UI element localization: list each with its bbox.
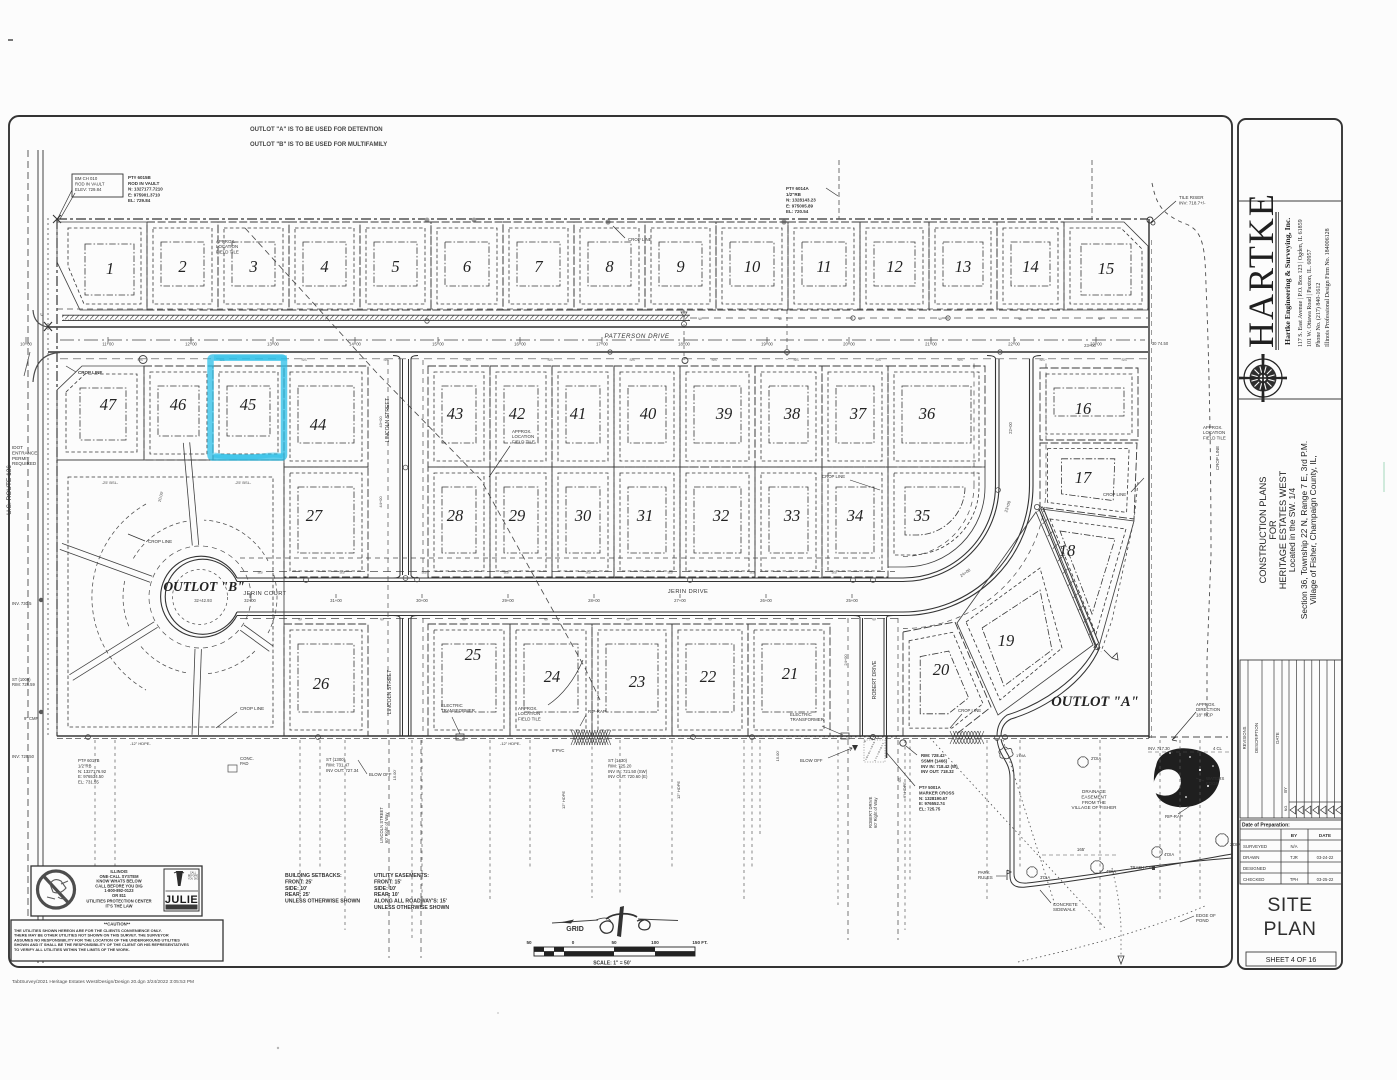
svg-text:SCALE: 1" = 50': SCALE: 1" = 50' — [593, 961, 631, 967]
svg-text:28+00: 28+00 — [588, 598, 600, 603]
svg-text:1: 1 — [106, 259, 114, 278]
svg-text:EL: 725.75: EL: 725.75 — [919, 807, 941, 812]
svg-text:SS: SS — [585, 570, 591, 575]
svg-text:SS: SS — [547, 357, 553, 362]
svg-text:FIELD TILE: FIELD TILE — [216, 249, 239, 254]
svg-text:150 FT.: 150 FT. — [692, 940, 707, 945]
svg-text:FRONT: 25': FRONT: 25' — [285, 879, 312, 885]
svg-text:27+00: 27+00 — [674, 598, 686, 603]
svg-text:PLAN: PLAN — [1264, 918, 1317, 940]
svg-text:CROP LINE: CROP LINE — [240, 706, 264, 711]
svg-text:N: 1327176.92: N: 1327176.92 — [78, 769, 107, 774]
svg-text:SS: SS — [503, 570, 509, 575]
svg-text:E: 975901.3710: E: 975901.3710 — [128, 192, 161, 197]
svg-text:SIDE: 10': SIDE: 10' — [285, 886, 307, 892]
svg-text:29+00: 29+00 — [502, 598, 514, 603]
svg-text:SS: SS — [257, 570, 263, 575]
svg-text:5: 5 — [391, 257, 399, 276]
svg-text:N: 1327177.7210: N: 1327177.7210 — [128, 187, 163, 192]
svg-text:12: 12 — [886, 257, 903, 276]
svg-text:12" HDPE: 12" HDPE — [561, 791, 566, 809]
svg-text:W: W — [298, 617, 302, 622]
svg-text:NO.: NO. — [1284, 805, 1288, 811]
svg-text:N: 1328143.23: N: 1328143.23 — [786, 198, 816, 203]
svg-text:W: W — [626, 617, 630, 622]
svg-text:INV OUT: 718.32: INV OUT: 718.32 — [921, 769, 954, 774]
svg-text:FOR: FOR — [1268, 520, 1278, 540]
svg-text:VILLAGE OF FISHER: VILLAGE OF FISHER — [1072, 805, 1118, 810]
svg-text:BM CH 010: BM CH 010 — [75, 176, 98, 181]
svg-text:Phone No. (217) 840-1612: Phone No. (217) 840-1612 — [1315, 283, 1322, 347]
svg-text:PERMIT: PERMIT — [12, 456, 30, 461]
svg-text:TO VERIFY ALL UTILITIES WITHIN: TO VERIFY ALL UTILITIES WITHIN THE LIMIT… — [14, 947, 130, 952]
svg-text:10: 10 — [744, 257, 761, 276]
svg-text:SSMH (1466): SSMH (1466) — [921, 758, 948, 763]
svg-text:6"PVC: 6"PVC — [552, 748, 564, 753]
svg-text:REAR: 25': REAR: 25' — [285, 892, 310, 898]
svg-text:ST (1430): ST (1430) — [608, 758, 628, 763]
svg-text:15.00': 15.00' — [775, 750, 780, 761]
svg-text:44: 44 — [310, 415, 327, 434]
svg-text:CROP LINE: CROP LINE — [958, 708, 981, 713]
svg-text:ROD IN VAULT: ROD IN VAULT — [75, 182, 105, 187]
svg-text:24: 24 — [544, 667, 561, 686]
svg-text:U: U — [40, 312, 43, 317]
svg-text:Located in the SW. 1/4: Located in the SW. 1/4 — [1287, 488, 1297, 573]
svg-text:REAR: 10': REAR: 10' — [374, 892, 399, 898]
svg-text:PT# 6017B: PT# 6017B — [78, 758, 100, 763]
svg-text:IDOT: IDOT — [12, 445, 23, 450]
svg-text:38: 38 — [783, 404, 801, 423]
svg-text:28: 28 — [447, 506, 464, 525]
svg-text:TPH: TPH — [1290, 877, 1298, 882]
svg-text:TabtSurvey/2021 Heritage Estat: TabtSurvey/2021 Heritage Estates West/De… — [12, 979, 194, 985]
svg-text:TJR: TJR — [1290, 855, 1298, 860]
svg-text:MARKER CROSS: MARKER CROSS — [919, 790, 954, 795]
svg-text:9: 9 — [676, 257, 684, 276]
svg-text:26: 26 — [313, 674, 330, 693]
svg-text:INV. 717.30: INV. 717.30 — [1148, 746, 1170, 751]
svg-text:YOU DIG: YOU DIG — [188, 877, 199, 880]
svg-text:1/2"RB: 1/2"RB — [786, 192, 802, 197]
svg-text:1/2"RB: 1/2"RB — [78, 763, 92, 768]
svg-text:23: 23 — [629, 672, 646, 691]
svg-text:SHEET 4 OF 16: SHEET 4 OF 16 — [1266, 957, 1317, 964]
svg-text:CROP LINE: CROP LINE — [628, 237, 652, 242]
svg-text:DRAWN: DRAWN — [1243, 855, 1259, 860]
svg-text:15.00': 15.00' — [392, 769, 397, 780]
svg-text:SS: SS — [301, 357, 307, 362]
svg-text:3: 3 — [248, 257, 257, 276]
svg-text:W: W — [462, 617, 466, 622]
svg-text:ROBERT DRIVE: ROBERT DRIVE — [872, 660, 878, 699]
svg-text:17: 17 — [1075, 468, 1092, 487]
svg-text:FROM THE: FROM THE — [1082, 800, 1106, 805]
svg-text:FIELD TILE: FIELD TILE — [1203, 435, 1226, 440]
svg-text:117 S. East Avenue | P.O. Box: 117 S. East Avenue | P.O. Box 123 | Ogde… — [1298, 219, 1304, 347]
svg-text:CHECKED: CHECKED — [1243, 877, 1264, 882]
svg-text:UNLESS OTHERWISE SHOWN: UNLESS OTHERWISE SHOWN — [285, 899, 360, 905]
svg-text:22+00: 22+00 — [1008, 421, 1013, 433]
svg-text:INV IN: 721.50 (SW): INV IN: 721.50 (SW) — [608, 769, 648, 774]
svg-text:31: 31 — [636, 506, 654, 525]
svg-text:FRONT: 15': FRONT: 15' — [374, 879, 401, 885]
svg-text:50: 50 — [526, 940, 532, 945]
svg-text:32+00: 32+00 — [244, 598, 256, 603]
svg-text:INV OUT: 727.34: INV OUT: 727.34 — [326, 768, 359, 773]
svg-text:SS: SS — [137, 357, 143, 362]
svg-text:SS: SS — [793, 357, 799, 362]
svg-text:27: 27 — [306, 506, 323, 525]
svg-text:60' Right of Way: 60' Right of Way — [873, 797, 878, 828]
svg-text:CONSTRUCTION PLANS: CONSTRUCTION PLANS — [1258, 477, 1268, 584]
svg-text:EL: 729.84: EL: 729.84 — [128, 198, 151, 203]
svg-text:INV: 718.7+/-: INV: 718.7+/- — [1179, 201, 1206, 206]
svg-text:W: W — [858, 317, 862, 321]
svg-text:SS: SS — [1121, 357, 1127, 362]
svg-text:TRANSFORMER: TRANSFORMER — [790, 717, 824, 722]
svg-text:CROP LINE: CROP LINE — [148, 539, 172, 544]
svg-text:Date of Preparation:: Date of Preparation: — [1242, 823, 1290, 829]
svg-text:29: 29 — [509, 506, 526, 525]
svg-text:SS: SS — [465, 357, 471, 362]
svg-text:101 W. Ottawa Road | Paxton, I: 101 W. Ottawa Road | Paxton, IL. 60957 — [1307, 249, 1313, 347]
svg-text:35: 35 — [913, 506, 931, 525]
svg-text:HARTKE: HARTKE — [1241, 192, 1281, 348]
svg-text:N/A: N/A — [1291, 844, 1298, 849]
svg-text:31+00: 31+00 — [330, 598, 342, 603]
svg-text:W: W — [1098, 317, 1102, 321]
svg-text:-25' BSL-: -25' BSL- — [102, 480, 119, 485]
svg-text:6" HDPE: 6" HDPE — [902, 782, 907, 798]
svg-text:IT'S THE LAW: IT'S THE LAW — [106, 903, 133, 908]
svg-text:3'DIA: 3'DIA — [1040, 875, 1050, 880]
svg-text:EL: 720.54: EL: 720.54 — [786, 209, 809, 214]
svg-text:E: 976552.74: E: 976552.74 — [919, 801, 945, 806]
svg-text:ROD IN VAULT: ROD IN VAULT — [128, 181, 160, 186]
svg-text:PT# 6015B: PT# 6015B — [128, 175, 152, 180]
svg-text:16: 16 — [1075, 399, 1092, 418]
svg-text:Illinois Professional Design F: Illinois Professional Design Firm No. 18… — [1324, 228, 1331, 347]
svg-text:11: 11 — [816, 257, 831, 276]
svg-text:32+42.93: 32+42.93 — [194, 598, 212, 603]
svg-text:OUTLOT "B" IS TO BE USED FOR M: OUTLOT "B" IS TO BE USED FOR MULTIFAMILY — [250, 142, 387, 148]
svg-text:CROP LINE: CROP LINE — [1215, 446, 1220, 470]
svg-text:Village of Fisher, Champaign C: Village of Fisher, Champaign County, IL, — [1308, 455, 1318, 604]
svg-text:W: W — [380, 617, 384, 622]
svg-text:SS: SS — [875, 357, 881, 362]
svg-text:EASEMENT: EASEMENT — [1081, 794, 1106, 799]
svg-text:W: W — [778, 317, 782, 321]
svg-text:GRID: GRID — [566, 926, 584, 933]
svg-text:PT# 6014A: PT# 6014A — [786, 186, 810, 191]
svg-text:21: 21 — [782, 664, 799, 683]
svg-text:-12" HDPE-: -12" HDPE- — [500, 741, 521, 746]
svg-text:SS: SS — [711, 357, 717, 362]
svg-text:BLOW OFF: BLOW OFF — [369, 772, 392, 777]
svg-text:DATE: DATE — [1275, 732, 1280, 743]
svg-text:CROP LINE: CROP LINE — [822, 474, 845, 479]
svg-text:E: 976534.50: E: 976534.50 — [78, 774, 104, 779]
svg-text:32: 32 — [712, 506, 730, 525]
svg-text:FIELD TILE: FIELD TILE — [518, 716, 541, 721]
svg-text:SS: SS — [629, 357, 635, 362]
svg-text:RIM: 731.47: RIM: 731.47 — [326, 762, 350, 767]
svg-text:E: 975005.89: E: 975005.89 — [786, 203, 814, 208]
svg-text:LINCOLN STREET: LINCOLN STREET — [387, 669, 393, 714]
svg-text:14: 14 — [1022, 257, 1039, 276]
svg-text:BY: BY — [1291, 833, 1297, 838]
svg-text:42: 42 — [509, 404, 526, 423]
svg-text:26+00: 26+00 — [760, 598, 772, 603]
svg-text:165': 165' — [1077, 847, 1085, 852]
svg-text:SS: SS — [749, 570, 755, 575]
svg-text:19: 19 — [998, 631, 1015, 650]
svg-text:25: 25 — [465, 645, 482, 664]
svg-text:39: 39 — [715, 404, 733, 423]
svg-text:RIP-RAP: RIP-RAP — [588, 709, 606, 714]
svg-text:0: 0 — [572, 940, 575, 945]
svg-text:SURVEYED: SURVEYED — [1243, 844, 1267, 849]
svg-text:4: 4 — [320, 257, 328, 276]
svg-text:7: 7 — [534, 257, 543, 276]
svg-text:U.S. ROUTE 136: U.S. ROUTE 136 — [6, 465, 13, 515]
svg-text:4'DIA: 4'DIA — [1164, 852, 1174, 857]
svg-text:1'DIA: 1'DIA — [1016, 753, 1026, 758]
svg-text:12" HDPE: 12" HDPE — [676, 781, 681, 799]
svg-text:RIM: 728.59: RIM: 728.59 — [12, 682, 35, 687]
svg-text:PATTERSON DRIVE: PATTERSON DRIVE — [604, 333, 669, 340]
svg-text:45: 45 — [240, 395, 257, 414]
svg-text:DRAINAGE: DRAINAGE — [1082, 789, 1106, 794]
svg-text:13: 13 — [955, 257, 972, 276]
svg-text:BLOW OFF: BLOW OFF — [800, 758, 823, 763]
svg-text:15: 15 — [1098, 259, 1115, 278]
svg-text:25+00: 25+00 — [846, 598, 858, 603]
svg-text:DESCRIPTION: DESCRIPTION — [1254, 723, 1259, 753]
svg-text:2: 2 — [178, 257, 186, 276]
svg-text:24+00: 24+00 — [843, 654, 848, 666]
svg-text:W: W — [1018, 317, 1022, 321]
svg-text:44+00: 44+00 — [378, 496, 383, 508]
svg-text:SS: SS — [898, 777, 902, 783]
svg-text:LINCOLN STREET: LINCOLN STREET — [385, 397, 391, 442]
svg-text:TILE RISER: TILE RISER — [1179, 195, 1204, 200]
svg-text:REQUIRED: REQUIRED — [12, 461, 37, 466]
svg-text:ALONG ALL ROADWAY'S: 15': ALONG ALL ROADWAY'S: 15' — [374, 899, 447, 905]
svg-text:SS: SS — [957, 357, 963, 362]
svg-text:SIDE: 10': SIDE: 10' — [374, 886, 396, 892]
svg-text:W: W — [708, 617, 712, 622]
svg-text:-25' BSL-: -25' BSL- — [235, 480, 252, 485]
svg-text:OUTLOT "A" IS TO BE USED FOR D: OUTLOT "A" IS TO BE USED FOR DETENTION — [250, 127, 383, 133]
svg-text:18: 18 — [1059, 541, 1076, 560]
svg-text:23+00: 23+00 — [1084, 343, 1096, 348]
svg-text:N: 1328190.67: N: 1328190.67 — [919, 796, 948, 801]
svg-text:REVISIONS: REVISIONS — [1242, 726, 1247, 749]
svg-text:DESIGNED: DESIGNED — [1243, 866, 1266, 871]
svg-text:ST (1300): ST (1300) — [326, 757, 346, 762]
svg-text:-12" HDPE-: -12" HDPE- — [130, 741, 151, 746]
svg-text:W: W — [872, 617, 876, 622]
svg-text:SS: SS — [421, 570, 427, 575]
svg-text:RULES: RULES — [978, 875, 993, 880]
svg-text:INV. 730.5: INV. 730.5 — [12, 601, 32, 606]
svg-text:JULIE: JULIE — [165, 894, 198, 906]
svg-text:RIM: 725.20: RIM: 725.20 — [608, 763, 632, 768]
svg-text:41: 41 — [570, 404, 587, 423]
svg-text:EDGE: EDGE — [1206, 781, 1219, 786]
svg-text:8: 8 — [605, 257, 614, 276]
svg-text:30 74.50: 30 74.50 — [1152, 341, 1169, 346]
svg-text:OUTLOT "A": OUTLOT "A" — [1051, 694, 1138, 710]
svg-text:SS: SS — [339, 570, 345, 575]
svg-text:34: 34 — [846, 506, 864, 525]
svg-text:4 CL: 4 CL — [1213, 746, 1223, 751]
svg-text:30+00: 30+00 — [416, 598, 428, 603]
svg-text:UNLESS OTHERWISE SHOWN: UNLESS OTHERWISE SHOWN — [374, 905, 449, 911]
svg-text:TRANSFORMER: TRANSFORMER — [441, 708, 475, 713]
svg-text:50: 50 — [611, 940, 617, 945]
svg-text:SS: SS — [667, 570, 673, 575]
svg-text:6: 6 — [463, 257, 472, 276]
svg-text:100: 100 — [651, 940, 659, 945]
svg-text:9" CMP: 9" CMP — [24, 716, 38, 721]
svg-text:W: W — [938, 317, 942, 321]
svg-text:60' Right of Way: 60' Right of Way — [384, 812, 389, 843]
svg-text:SS: SS — [1039, 357, 1045, 362]
svg-text:W: W — [698, 317, 702, 321]
svg-text:Hartke Engineering & Surveying: Hartke Engineering & Surveying, Inc. — [1283, 218, 1292, 345]
svg-text:18" RCP: 18" RCP — [1196, 712, 1213, 717]
svg-text:47: 47 — [100, 395, 117, 414]
svg-text:22: 22 — [700, 667, 717, 686]
svg-text:JERIN DRIVE: JERIN DRIVE — [668, 589, 708, 595]
svg-text:ENTRANCE: ENTRANCE — [12, 450, 37, 455]
svg-text:W: W — [544, 617, 548, 622]
svg-text:33: 33 — [783, 506, 801, 525]
svg-text:43: 43 — [447, 404, 464, 423]
svg-text:40: 40 — [640, 404, 657, 423]
svg-text:W: W — [790, 617, 794, 622]
svg-text:03-24-22: 03-24-22 — [1317, 855, 1334, 860]
svg-text:**CAUTION**: **CAUTION** — [104, 922, 131, 927]
svg-text:30: 30 — [574, 506, 592, 525]
svg-text:POND: POND — [1196, 918, 1209, 923]
svg-text:03-25-22: 03-25-22 — [1317, 877, 1334, 882]
svg-text:SS: SS — [831, 570, 837, 575]
svg-text:RIM: 728.42: RIM: 728.42 — [921, 753, 945, 758]
svg-text:PAD: PAD — [240, 761, 249, 766]
svg-text:OUTLOT "B": OUTLOT "B" — [163, 579, 244, 594]
svg-text:EL: 731.55: EL: 731.55 — [78, 780, 99, 785]
svg-text:DATE: DATE — [1319, 833, 1331, 838]
svg-text:CROP LINE: CROP LINE — [1103, 492, 1126, 497]
svg-text:20: 20 — [933, 660, 950, 679]
svg-text:UTILITY EASEMENTS:: UTILITY EASEMENTS: — [374, 873, 429, 879]
svg-text:43+00: 43+00 — [378, 416, 383, 428]
svg-text:SIDEWALK: SIDEWALK — [1053, 907, 1076, 912]
svg-text:PT# 5001A: PT# 5001A — [919, 785, 941, 790]
svg-text:FIELD TILE: FIELD TILE — [512, 439, 535, 444]
svg-text:37: 37 — [849, 404, 867, 423]
svg-text:BUILDING SETBACKS:: BUILDING SETBACKS: — [285, 873, 342, 879]
svg-text:46: 46 — [170, 395, 187, 414]
svg-text:OR 811: OR 811 — [112, 893, 127, 898]
svg-text:BY: BY — [1283, 787, 1288, 793]
svg-text:ELEV: 729.84: ELEV: 729.84 — [75, 187, 102, 192]
svg-text:INV IN: 718.42 (W): INV IN: 718.42 (W) — [921, 764, 958, 769]
svg-text:SITE: SITE — [1267, 894, 1312, 916]
svg-text:INV OUT: 720.60 (E): INV OUT: 720.60 (E) — [608, 774, 648, 779]
svg-text:36: 36 — [918, 404, 936, 423]
svg-text:INV: 729.50: INV: 729.50 — [12, 754, 35, 759]
